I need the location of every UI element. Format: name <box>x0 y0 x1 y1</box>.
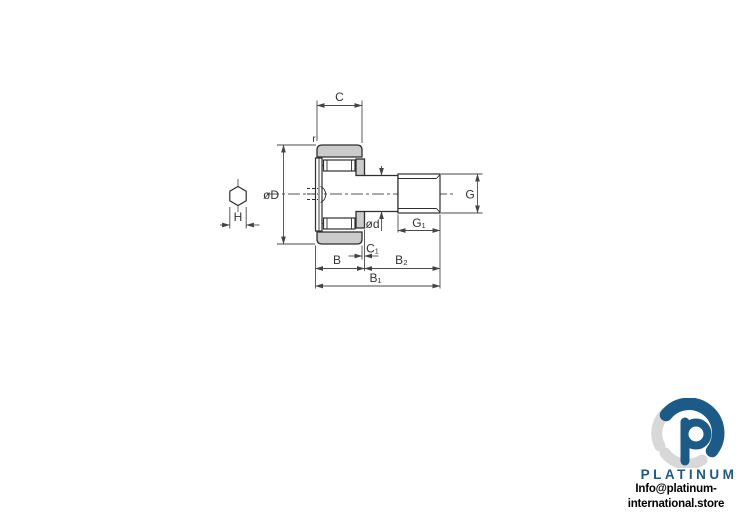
dim-label-c: C <box>335 90 344 104</box>
side-plate <box>316 158 323 231</box>
stud-flange <box>356 159 365 228</box>
dim-label-h: H <box>234 210 243 224</box>
page-background: C r øD H ød G G₁ C₁ B B₂ B₁ PLATINUM Inf… <box>0 0 750 500</box>
dim-label-c1: C₁ <box>366 242 379 256</box>
hexagon-shape <box>230 187 246 206</box>
brand-email: Info@platinum-international.store <box>602 482 750 512</box>
brand-block: PLATINUM Info@platinum-international.sto… <box>602 398 750 512</box>
dim-label-b2: B₂ <box>395 253 408 267</box>
hex-socket-front-view <box>230 187 246 206</box>
dim-label-g1: G₁ <box>412 216 425 230</box>
brand-name: PLATINUM <box>628 468 750 482</box>
dim-label-r: r <box>312 133 316 145</box>
dim-label-od: øD <box>263 188 279 202</box>
platinum-logo-icon <box>646 398 732 468</box>
dim-label-g: G <box>465 188 474 202</box>
dim-label-b: B <box>333 253 341 267</box>
stud-shaft <box>365 176 399 212</box>
thread <box>398 174 440 213</box>
needle-rollers <box>324 160 356 229</box>
dim-label-b1: B₁ <box>369 271 381 285</box>
dim-label-id: ød <box>365 217 379 231</box>
